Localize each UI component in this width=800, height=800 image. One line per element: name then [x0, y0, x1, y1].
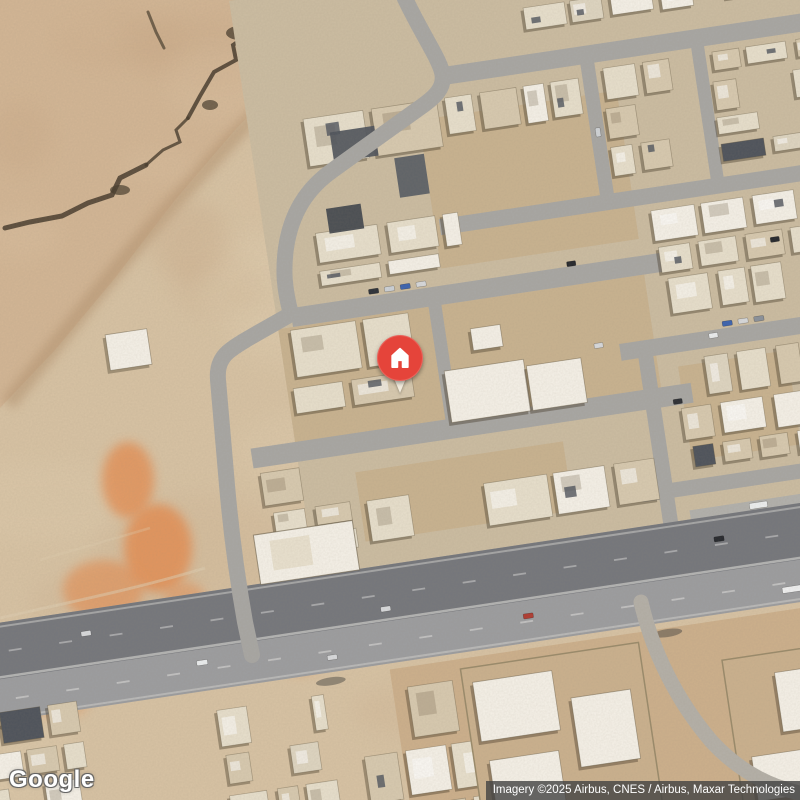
attribution-bar: Imagery ©2025 Airbus, CNES / Airbus, Max… [486, 781, 800, 800]
map-viewport[interactable]: Google Imagery ©2025 Airbus, CNES / Airb… [0, 0, 800, 800]
satellite-imagery[interactable] [0, 0, 800, 800]
grain-overlay [0, 0, 800, 800]
google-logo[interactable]: Google [9, 766, 95, 794]
home-icon [387, 345, 413, 371]
location-marker[interactable] [377, 335, 423, 397]
attribution-text: Imagery ©2025 Airbus, CNES / Airbus, Max… [493, 784, 795, 796]
marker-circle [377, 335, 423, 381]
